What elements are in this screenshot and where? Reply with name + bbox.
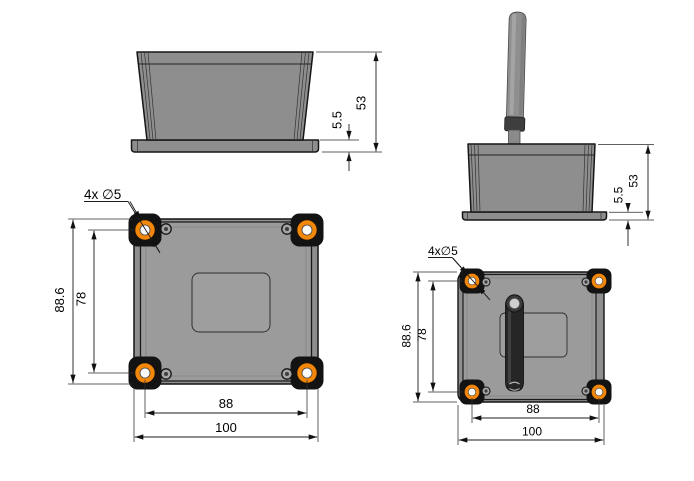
antenna-highlight <box>508 302 511 384</box>
screw-hole <box>482 387 490 395</box>
mounting-hole <box>468 277 476 285</box>
dim-label: 88 <box>219 396 233 411</box>
screw-hole <box>161 224 171 234</box>
enclosure-body <box>468 144 595 212</box>
enclosure-body <box>137 52 313 140</box>
dim-pitch-78: 78 <box>74 230 135 373</box>
view-side: 53 5.5 <box>132 52 383 171</box>
mounting-hole <box>595 388 603 396</box>
dim-label: 5.5 <box>612 186 626 203</box>
dim-label: 100 <box>522 425 542 439</box>
dim-height-53: 53 <box>598 145 654 221</box>
dim-outer-88-6: 88.6 <box>52 219 133 384</box>
callout-label: 4x∅5 <box>428 244 458 258</box>
screw-hole <box>582 387 590 395</box>
screw-hole <box>282 369 292 379</box>
dim-label: 53 <box>627 174 641 188</box>
screw-hole <box>582 278 590 286</box>
antenna-band <box>505 117 525 132</box>
dim-label: 100 <box>215 420 237 435</box>
enclosure-flange <box>463 212 607 220</box>
dim-label: 5.5 <box>330 111 345 129</box>
dim-label: 88.6 <box>400 324 414 348</box>
view-side-antenna: 53 5.5 <box>463 12 655 246</box>
dim-pitch-78: 78 <box>415 281 463 392</box>
antenna-top-cap-center <box>510 299 520 309</box>
view-top-antenna: 4x∅5 88.6 78 88 <box>400 244 612 445</box>
dim-flange-5-5: 5.5 <box>320 111 359 171</box>
mounting-hole <box>468 388 476 396</box>
dim-label: 53 <box>354 96 369 110</box>
mounting-hole <box>140 225 150 235</box>
screw-hole <box>482 278 490 286</box>
dim-label: 78 <box>74 292 89 306</box>
mounting-hole <box>302 368 312 378</box>
technical-drawing: 53 5.5 <box>0 0 694 481</box>
screw-hole <box>282 224 292 234</box>
mounting-hole <box>595 277 603 285</box>
antenna-laid-flat <box>506 295 524 391</box>
callout-label: 4x ∅5 <box>84 187 121 202</box>
drawing-canvas: 53 5.5 <box>0 0 694 481</box>
dim-flange-5-5: 5.5 <box>609 186 643 246</box>
mounting-hole <box>302 225 312 235</box>
lid-recess <box>192 273 270 332</box>
screw-hole <box>161 369 171 379</box>
antenna-stem <box>509 130 521 145</box>
dim-label: 78 <box>415 328 429 342</box>
dim-label: 88 <box>526 402 540 416</box>
corner-mount <box>291 214 324 247</box>
antenna <box>505 12 528 132</box>
dim-label: 88.6 <box>52 287 67 312</box>
mounting-hole <box>140 368 150 378</box>
enclosure-flange <box>132 140 319 152</box>
dim-pitch-88: 88 <box>145 380 307 418</box>
view-top: 4x ∅5 88.6 78 88 <box>52 187 324 442</box>
